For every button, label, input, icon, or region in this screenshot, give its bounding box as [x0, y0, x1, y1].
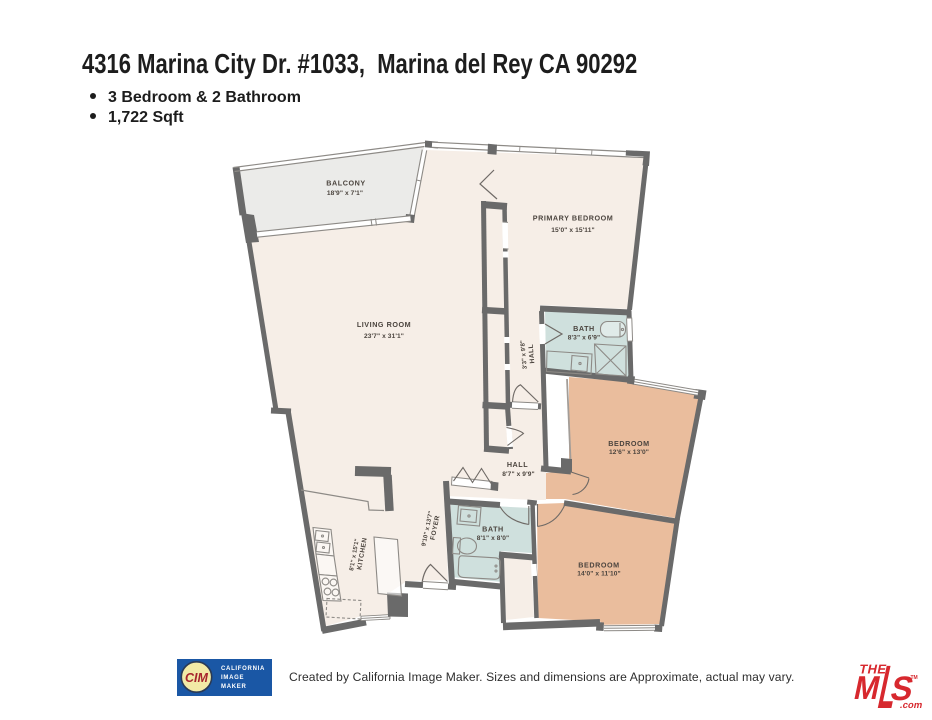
svg-text:BEDROOM: BEDROOM	[608, 439, 649, 448]
svg-text:8'7" x 9'9": 8'7" x 9'9"	[502, 471, 535, 478]
svg-text:LIVING ROOM: LIVING ROOM	[357, 320, 411, 329]
svg-text:BEDROOM: BEDROOM	[578, 561, 619, 570]
svg-text:12'6" x 13'0": 12'6" x 13'0"	[609, 449, 649, 456]
svg-text:8'1" x 8'0": 8'1" x 8'0"	[477, 535, 510, 542]
svg-text:15'0" x 15'11": 15'0" x 15'11"	[551, 227, 594, 234]
svg-text:BALCONY: BALCONY	[326, 179, 365, 188]
svg-text:BATH: BATH	[482, 525, 504, 534]
svg-text:BATH: BATH	[573, 324, 595, 333]
svg-text:PRIMARY BEDROOM: PRIMARY BEDROOM	[533, 214, 614, 223]
svg-text:14'0" x 11'10": 14'0" x 11'10"	[577, 571, 620, 578]
svg-text:23'7" x 31'1": 23'7" x 31'1"	[364, 333, 404, 340]
svg-text:18'9" x 7'1": 18'9" x 7'1"	[327, 190, 363, 197]
svg-text:HALL: HALL	[507, 460, 528, 469]
svg-text:8'3" x 6'9": 8'3" x 6'9"	[568, 335, 601, 342]
